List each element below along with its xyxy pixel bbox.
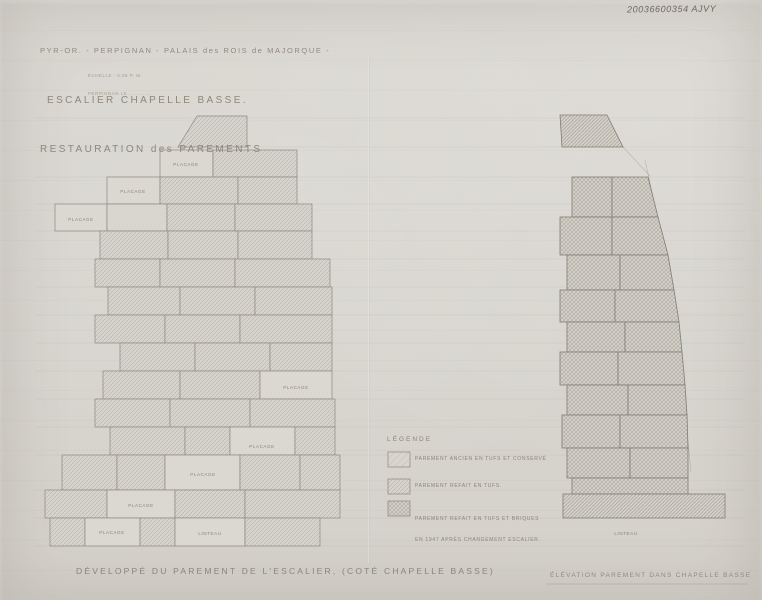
stone-label: PLACAGE [68,217,93,222]
stone [620,255,674,290]
stone [560,217,612,255]
stone [95,315,165,343]
stone [62,455,117,490]
title-line-region: PYR-OR. - PERPIGNAN - PALAIS des ROIS de… [40,46,330,55]
drawing-sheet: PLACAGE PLACAGE PLACAGE PLACAGE PLACAGE … [0,0,762,600]
stone [620,415,688,448]
legend-entry-3-line1: PAREMENT REFAIT EN TUFS ET BRIQUES [415,516,541,523]
stone [567,448,630,478]
stone [180,371,260,399]
stone [255,287,332,315]
title-block: PYR-OR. - PERPIGNAN - PALAIS des ROIS de… [40,10,330,191]
legend-swatch-cross-hatch [388,501,410,516]
left-elevation-caption: DÉVELOPPÉ DU PAREMENT DE L'ESCALIER, (CO… [76,566,495,576]
legend-swatch-sparse-hatch [388,452,410,467]
stone-label: PLACAGE [128,503,153,508]
stone [235,204,312,231]
stone [140,518,175,546]
legend-entry-3: PAREMENT REFAIT EN TUFS ET BRIQUES EN 19… [415,502,541,558]
stone-label: LINTEAU [614,531,637,536]
stone [120,343,195,371]
stone [95,259,160,287]
stone [630,448,688,478]
legend-swatches [388,452,410,516]
stone [612,177,658,217]
right-elevation-caption: ÉLÉVATION PAREMENT DANS CHAPELLE BASSE [550,572,751,579]
stone [50,518,85,546]
stone [567,255,620,290]
stone [245,518,320,546]
title-line-work: RESTAURATION des PAREMENTS [40,144,330,155]
stone [117,455,165,490]
lintel-stone [563,494,725,518]
stone [110,427,185,455]
scale-note: ÉCHELLE : 0,05 P. M. PERPIGNAN LE ......… [88,61,150,109]
stone [95,399,170,427]
stone [560,290,615,322]
stone [108,287,180,315]
stone [167,204,235,231]
stone [300,455,340,490]
stone [612,217,668,255]
legend-header: LÉGENDE [387,436,432,443]
stone-label: PLACAGE [190,472,215,477]
stone [572,478,688,494]
archive-reference-number: 20036600354 AJVY [627,4,716,15]
stone [295,427,335,455]
stone [107,204,167,231]
stone [185,427,230,455]
legend-entry-3-line2: EN 1947 APRÈS CHANGEMENT ESCALIER. [415,537,541,544]
stone [165,315,240,343]
stone [572,177,612,217]
stone [625,322,682,352]
paper-fold-crease [368,58,370,563]
scale-note-line1: ÉCHELLE : 0,05 P. M. [88,73,150,79]
stone [195,343,270,371]
stone [100,231,168,259]
stone [567,385,628,415]
stone [230,427,295,455]
stone [103,371,180,399]
stone [235,259,330,287]
stone [45,490,107,518]
right-elevation-labels: LINTEAU [614,531,637,536]
stone [250,399,335,427]
stone [562,415,620,448]
stone [560,352,618,385]
stone [270,343,332,371]
stone [175,490,245,518]
stone-label: LINTEAU [198,531,221,536]
stone-label: PLACAGE [99,530,124,535]
stone [180,287,255,315]
stone [238,231,312,259]
stone [168,231,238,259]
stone [240,455,300,490]
legend-entry-1: PAREMENT ANCIEN EN TUFS ET CONSERVÉ [415,456,547,463]
stone [628,385,687,415]
stone [160,259,235,287]
stone [618,352,685,385]
stone [615,290,679,322]
legend-entry-2: PAREMENT REFAIT EN TUFS. [415,483,502,490]
right-elevation [560,115,725,518]
stone [567,322,625,352]
construction-line [623,147,650,176]
stone-label: PLACAGE [249,444,274,449]
stone [170,399,250,427]
stone [240,315,332,343]
stone [245,490,340,518]
stone [560,115,623,147]
legend-swatch-diagonal-hatch [388,479,410,494]
scale-note-line2: PERPIGNAN LE ............ [88,91,150,97]
stone-label: PLACAGE [283,385,308,390]
